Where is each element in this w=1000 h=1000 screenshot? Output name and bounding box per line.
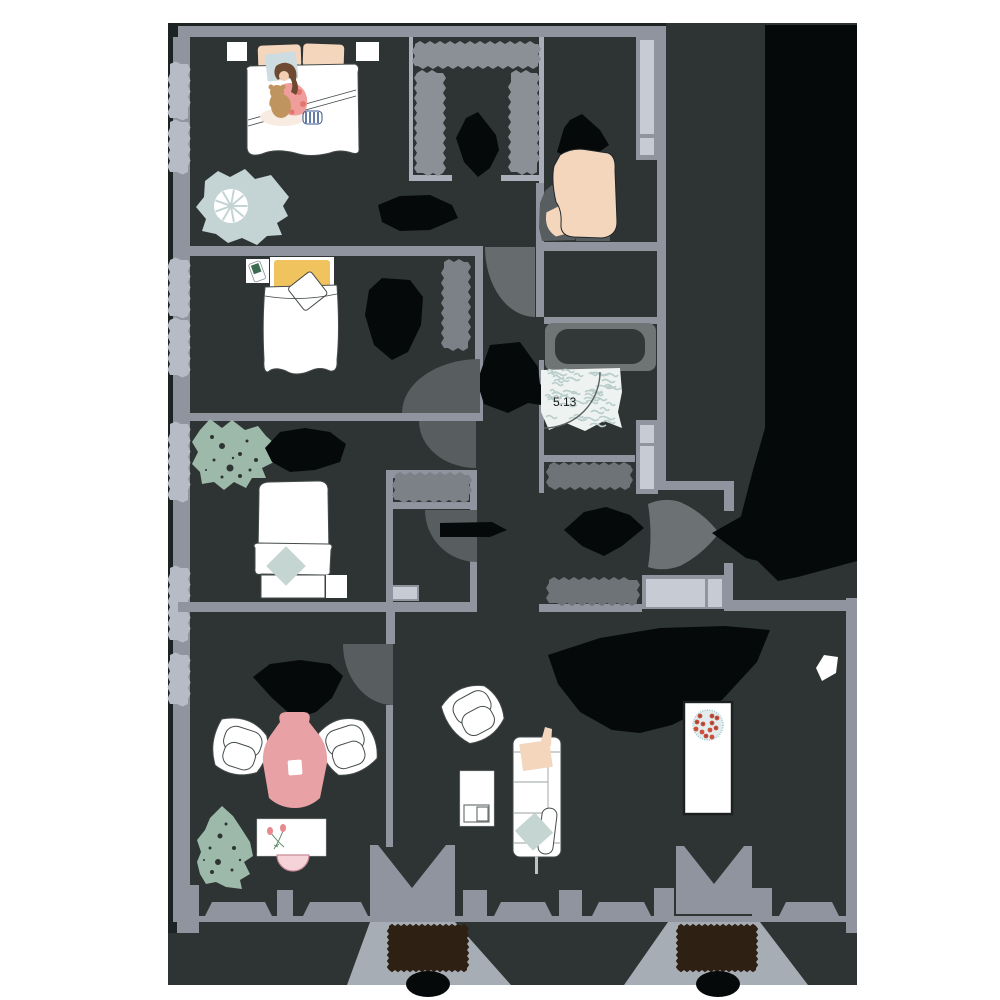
svg-text:5.13: 5.13 [553,395,577,409]
